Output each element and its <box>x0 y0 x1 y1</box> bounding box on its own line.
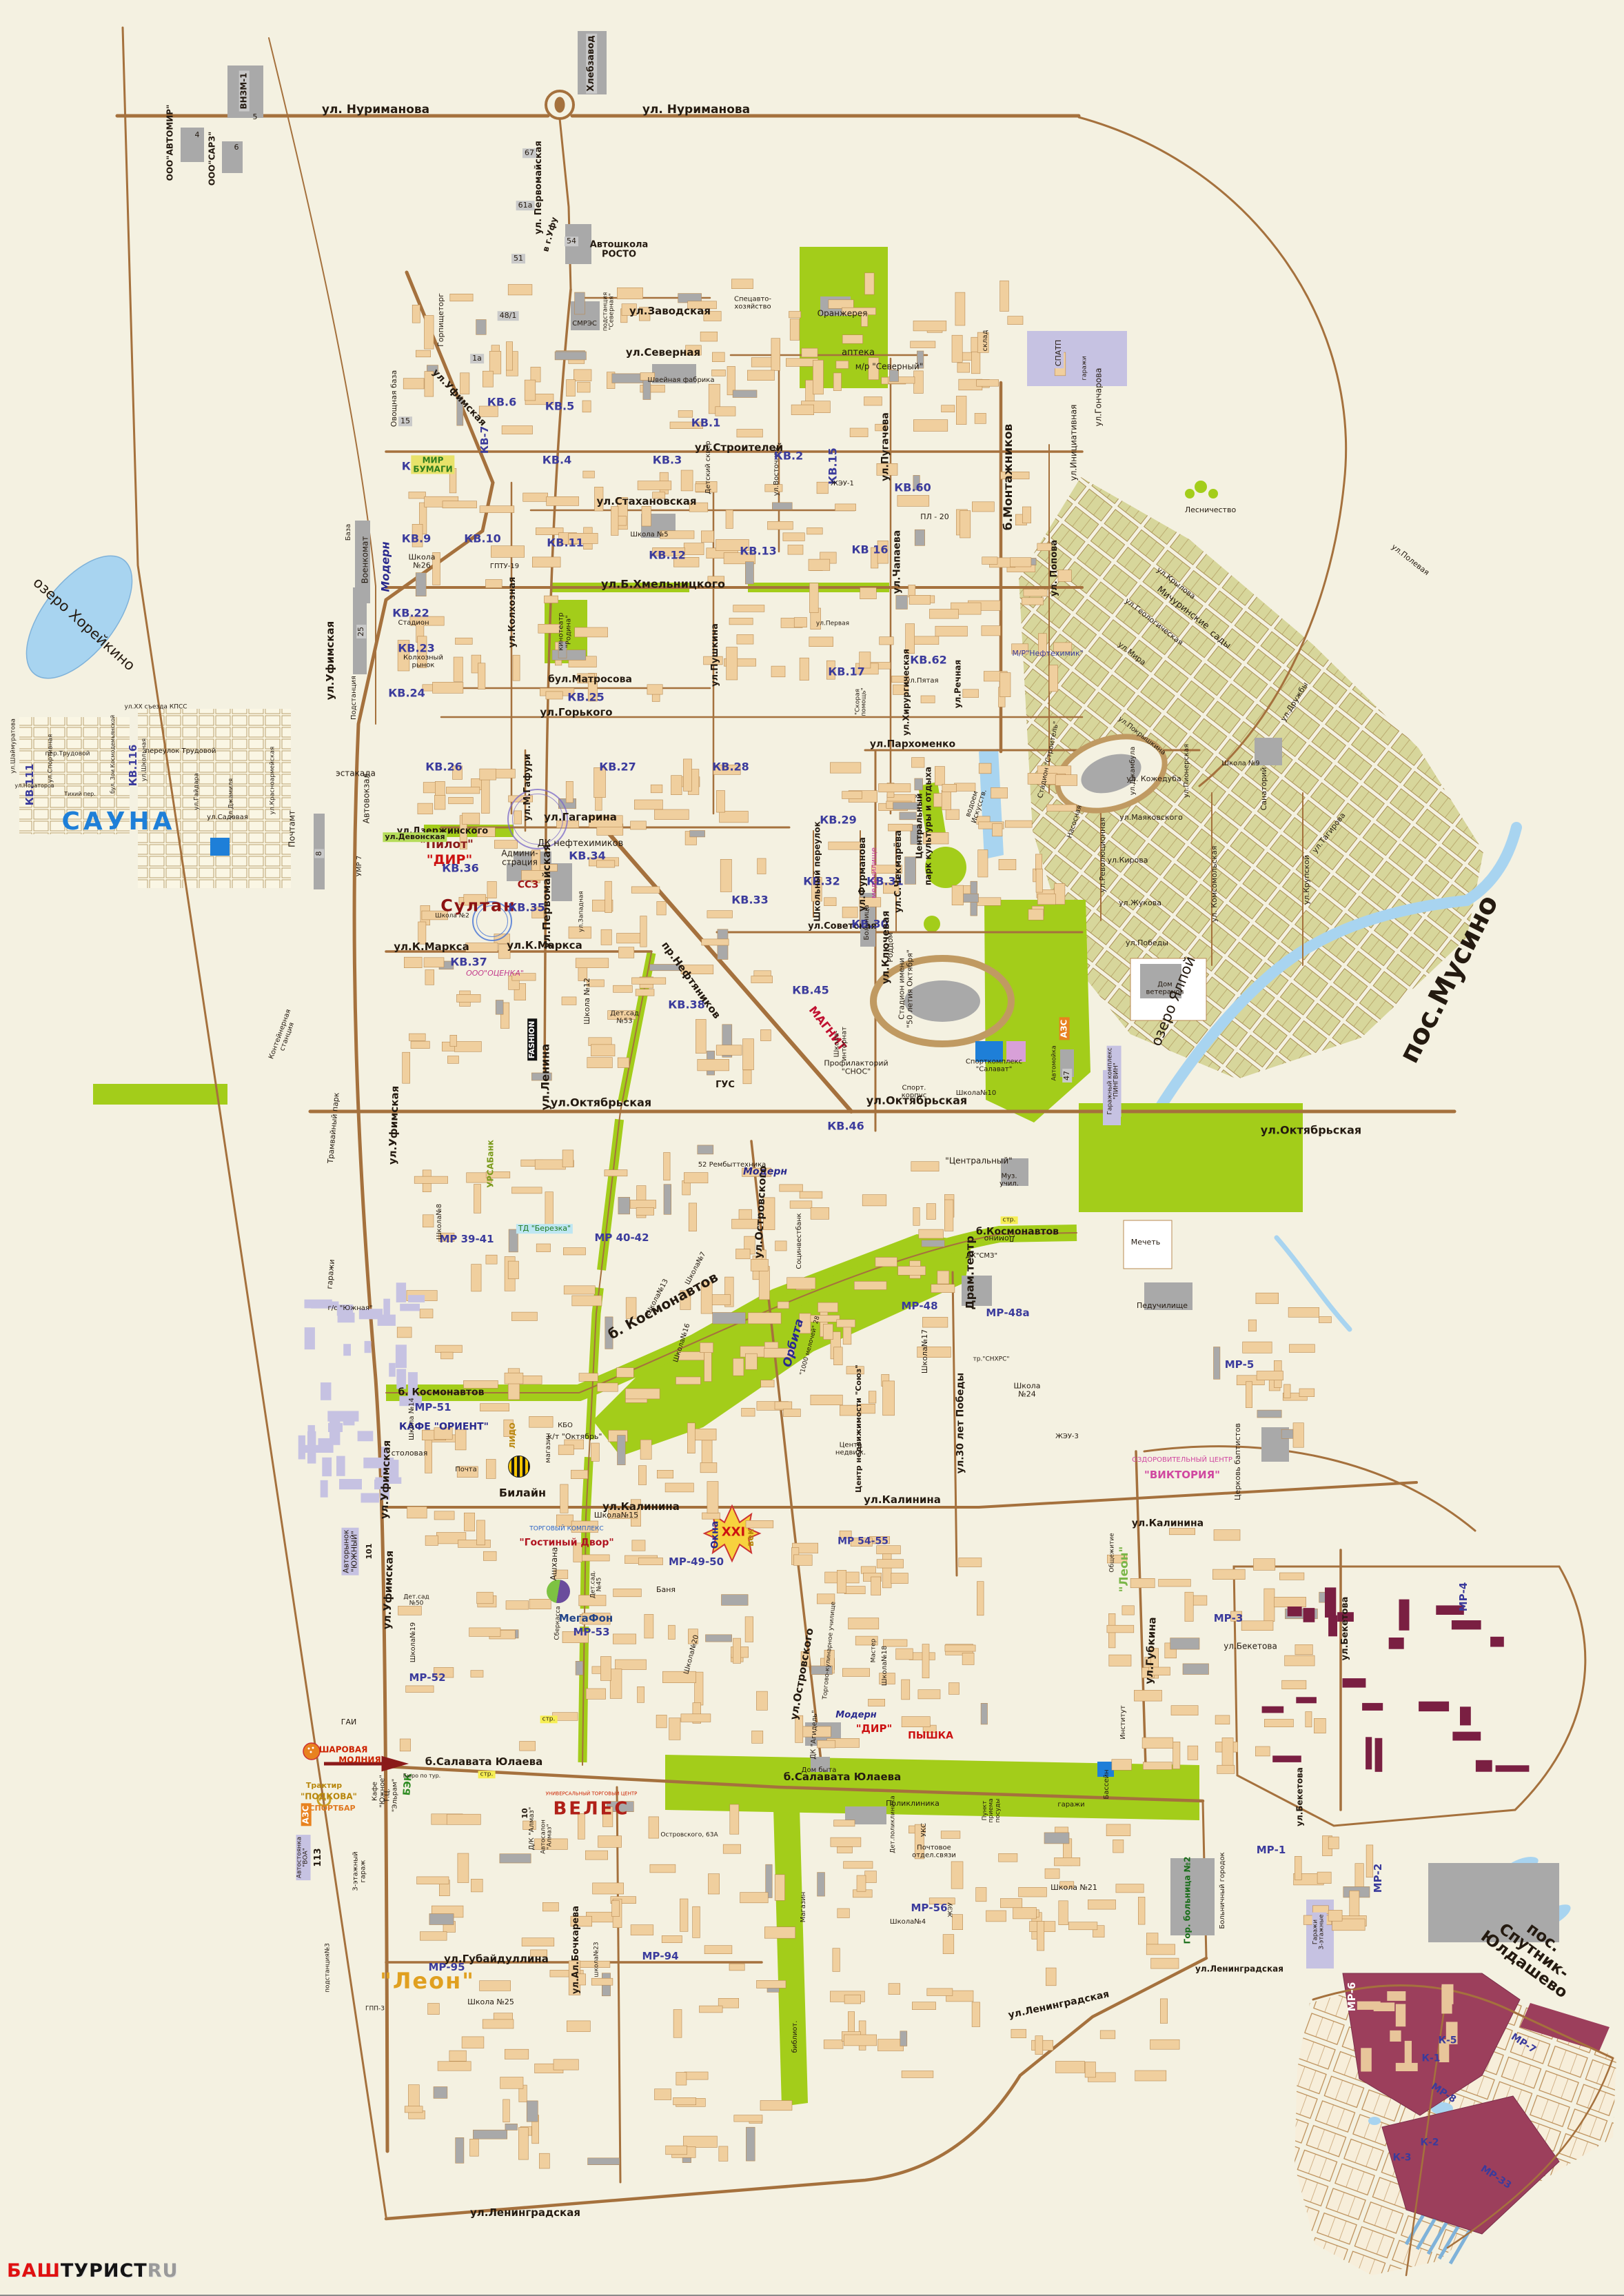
label-gpp3: ГПП-3 <box>365 2006 385 2012</box>
label-uks: УКС <box>921 1823 928 1837</box>
label-ul-oktyabrskaya-1: ул.Октябрьская <box>551 1098 651 1109</box>
label-spatp: СПАТП <box>1054 338 1064 368</box>
label-ul-novatorov: ул.Новаторов <box>14 783 54 789</box>
label-avtovokzal: Автовокзал <box>363 774 372 824</box>
label-shkola23: школа№23 <box>593 1942 600 1977</box>
label-kv116: КВ.116 <box>128 745 139 787</box>
label-dramteatr: Драм.театр <box>965 1236 977 1309</box>
label-tikhiy-per: Тихий пер. <box>64 792 96 797</box>
label-mr53: МР-53 <box>573 1627 609 1638</box>
label-viktoriya: "ВИКТОРИЯ" <box>1144 1470 1220 1481</box>
label-b-kosmonavtov-left: б. Космонавтов <box>398 1388 485 1398</box>
watermark-part-2: ТУРИСТ <box>61 2260 148 2282</box>
label-ul-chapaeva: ул.Чапаева <box>893 530 903 594</box>
kv116-plots <box>138 709 291 888</box>
watermark-part-1: БАШ <box>7 2260 61 2282</box>
label-mr-39-41: МР 39-41 <box>439 1234 494 1245</box>
bashturist-watermark: БАШТУРИСТRU <box>7 2260 178 2282</box>
label-ul-kirova: ул.Кирова <box>1108 856 1148 865</box>
label-mr52: МР-52 <box>409 1673 445 1684</box>
label-ul-revolyutsionnaya: ул.Революционная <box>1099 817 1107 892</box>
label-ul-devonskaya: ул.Девонская <box>383 832 447 842</box>
label-ul-gagarina: ул.Гагарина <box>544 812 617 823</box>
label-kv4: КВ.4 <box>542 455 571 467</box>
label-ul-komsomolskaya: ул. Комсомольская <box>1210 846 1219 923</box>
label-ul-goncharova: ул.Гончарова <box>1095 368 1104 427</box>
label-megafon: МегаФон <box>559 1613 613 1624</box>
label-modern-3: Модерн <box>835 1711 876 1720</box>
label-shkola12: Школа №12 <box>583 978 591 1025</box>
label-mr51: МР-51 <box>414 1402 451 1413</box>
label-bolnichny-gorodok: Больничный городок <box>1219 1852 1227 1929</box>
label-pochta: Почта <box>455 1467 477 1474</box>
label-num-5: 5 <box>253 113 258 121</box>
label-mr3: МР-3 <box>1214 1613 1244 1624</box>
label-smres: СМРЭС <box>572 321 597 328</box>
label-num-51: 51 <box>511 254 525 263</box>
label-avtosalon-almaz: Автосалон "Алмаз" <box>541 1820 554 1854</box>
label-kv24: КВ.24 <box>388 688 425 700</box>
label-sotsinvestbank: Социнвестбанк <box>796 1213 804 1269</box>
label-gostiny-dvor-2: "Гостиный Двор" <box>519 1538 613 1549</box>
label-num-8: 8 <box>314 849 324 858</box>
label-kv5: КВ.5 <box>545 401 574 413</box>
label-ul-pugacheva: ул.Пугачева <box>881 412 891 481</box>
label-zheu: ЖЭУ <box>948 1902 954 1917</box>
label-pyshka: ПЫШКА <box>908 1731 953 1742</box>
label-per-trudovoy: пер.Трудовой <box>45 751 90 757</box>
label-ul-popova: ул. Попова <box>1050 540 1059 596</box>
beeline-logo-icon <box>508 1456 530 1478</box>
label-ul-dzhamilya: ул.Джамиля <box>228 778 234 818</box>
label-str-chip-1: стр. <box>540 1715 558 1723</box>
label-shkola4: Школа№4 <box>890 1919 926 1926</box>
label-ul-khirurgicheskaya: ул.Хирургическая <box>902 649 911 736</box>
map-geometry-layer <box>0 0 1624 2295</box>
label-pl20: ПЛ - 20 <box>920 513 949 521</box>
label-ul-krupskoy: ул.Крупской <box>1303 855 1311 905</box>
label-azs-1: АЗС <box>1059 1018 1070 1040</box>
label-leon-big: "Леон" <box>380 1970 475 1993</box>
label-bassein: Бассейн <box>1104 1769 1111 1799</box>
label-ooo-sarz: ООО"САРЗ" <box>208 132 217 186</box>
label-ul-ufimskaya-v1: ул.Уфимская <box>325 621 336 701</box>
label-byuro-tur: Бюро по тур. <box>403 1773 440 1779</box>
label-kv35: КВ.35 <box>508 903 545 914</box>
label-shkola8: Школа№8 <box>436 1204 444 1240</box>
label-shkola19: Школа№19 <box>410 1622 418 1663</box>
label-sport-korpus: Спорт. корпус <box>902 1085 926 1100</box>
label-avtomoyka: Автомойка <box>1051 1045 1057 1080</box>
label-mr94: МР-94 <box>642 1951 678 1962</box>
label-garazhi-spatp: гаражи <box>1082 356 1088 380</box>
label-ul-nurimanova-1: ул. Нуриманова <box>322 104 429 117</box>
label-ul-leningradskaya-3: ул.Ленинградская <box>1195 1965 1283 1974</box>
label-k2: К-2 <box>1421 2138 1439 2148</box>
label-zheu3: ЖЭУ-3 <box>1055 1433 1079 1441</box>
label-sharovaya: ШАРОВАЯ <box>319 1746 368 1755</box>
label-kt-oktyabr: к/т "Октябрь" <box>548 1433 602 1441</box>
label-kv22: КВ.22 <box>392 608 429 620</box>
label-pochtovoe: Почтовое отдел.связи <box>912 1845 956 1860</box>
label-ul-shaymuratova: ул.Шаймуратова <box>10 718 17 774</box>
label-ul-k-marksa-1: ул.К.Маркса <box>394 942 469 953</box>
label-shkola2: Школа №2 <box>435 913 469 919</box>
label-ul-leningradskaya-1: ул.Ленинградская <box>470 2208 580 2219</box>
label-ul-beketova-1: ул.Бекетова <box>1224 1642 1277 1651</box>
label-ul-krasnoarmeyskaya: ул.Красноармейская <box>270 747 276 815</box>
label-bul-zoi: бул. Зои Космодемьянской <box>110 715 116 794</box>
label-lido: ЛИДО <box>509 1422 517 1449</box>
label-kv25: КВ.25 <box>567 692 605 704</box>
label-molniya: МОЛНИЯ <box>338 1756 380 1765</box>
label-mr1: МР-1 <box>1257 1845 1286 1856</box>
label-pingvin: Гаражный комплекс "ПИНГВИН" <box>1107 1045 1121 1116</box>
label-kv11: КВ.11 <box>547 538 584 550</box>
label-skoraya: "Скорая помощь" <box>855 687 869 716</box>
label-str-chip-2: стр. <box>1001 1216 1018 1224</box>
label-ul-zhukova: ул.Жукова <box>1119 899 1161 907</box>
label-oranzhereya: Оранжерея <box>818 310 868 319</box>
label-kv46: КВ.46 <box>827 1121 864 1133</box>
label-mr56: МР-56 <box>911 1903 947 1914</box>
label-kv1: КВ.1 <box>691 418 720 430</box>
label-kv12: КВ.12 <box>649 550 686 562</box>
label-institut: Институт <box>1120 1705 1128 1739</box>
label-ul-pyataya: ул.Пятая <box>906 678 939 685</box>
label-dir-2: "ДИР" <box>856 1724 893 1735</box>
label-ul-oktyabrskaya-3: ул.Октябрьская <box>1261 1125 1361 1137</box>
label-zheu1: ЖЭУ-1 <box>831 481 854 488</box>
label-mr5: МР-5 <box>1225 1360 1255 1371</box>
label-kv16: КВ 16 <box>851 545 888 556</box>
label-gptu19: ГПТУ-19 <box>490 563 519 571</box>
label-ul-kalinina-2: ул.Калинина <box>864 1495 941 1506</box>
label-ul-gaydara: ул.Гайдара <box>194 773 200 810</box>
label-obshchezhitie: Общежитие <box>1109 1533 1115 1572</box>
label-ul-stakhanovskaya: ул.Стахановская <box>596 496 696 507</box>
label-spetsavtokhozyaystvo: Спецавто- хозяйство <box>734 296 771 311</box>
label-mr-severny: м/р "Северный" <box>855 363 924 372</box>
label-kv17: КВ.17 <box>828 667 865 678</box>
label-kv7: КВ-7 <box>480 426 491 454</box>
label-shkola24: Школа №24 <box>1014 1382 1041 1398</box>
label-kv13: КВ.13 <box>740 546 777 558</box>
label-podkova: "ПОДКОВА" <box>301 1793 357 1802</box>
label-magazin-1: магазин <box>545 1433 553 1462</box>
label-azs-2: АЗС <box>301 1804 312 1826</box>
label-num-67: 67 <box>522 148 536 158</box>
label-shkola10: Школа№10 <box>956 1090 997 1098</box>
label-dk-almaz: Д/К "Алмаз" <box>529 1807 536 1851</box>
label-kv27: КВ.27 <box>599 762 636 774</box>
label-ul-xx-sezda: ул.XX съезда КПСС <box>124 704 187 710</box>
label-ul-zapadnaya: ул.Западная <box>578 891 585 932</box>
megafon-logo-icon <box>547 1580 570 1603</box>
label-modern-1: Модерн <box>380 541 392 592</box>
label-b-salavata-2: б.Салавата Юлаева <box>784 1772 902 1783</box>
label-gorpishchetorg: Горпищеторг <box>437 293 445 347</box>
label-shkola21: Школа №21 <box>1050 1884 1097 1892</box>
label-lesnichestvo: Лесничество <box>1185 506 1236 514</box>
label-num-10: 10 <box>521 1808 529 1818</box>
label-peduchilishche: Педучилище <box>1137 1302 1188 1310</box>
label-ostrovskogo-63a: Островского, 63А <box>660 1832 718 1838</box>
label-ul-shkolnaya: ул.Школьная <box>141 738 148 781</box>
label-khlebzavod: Хлебзавод <box>586 33 597 93</box>
label-detsad50: Дет.сад №50 <box>403 1595 429 1608</box>
label-mr95: МР-95 <box>428 1962 465 1973</box>
label-ul-gorkogo: ул.Горького <box>540 707 612 718</box>
label-kv2: КВ.2 <box>774 451 803 463</box>
label-mr54-55: МР 54-55 <box>838 1537 889 1547</box>
label-ul-pobedy: ул.Победы <box>1126 939 1168 947</box>
label-num-61a: 61а <box>516 201 535 210</box>
label-num-48-1: 48/1 <box>498 311 519 321</box>
label-apteka: аптека <box>842 348 875 358</box>
label-kv62: КВ.62 <box>910 655 947 667</box>
label-punkt-posudy: Пункт приема посуды <box>982 1798 1002 1822</box>
label-podstantsiya3: подстанция№3 <box>325 1943 331 1993</box>
label-kv34: КВ.34 <box>569 851 606 863</box>
label-ul-beketova-3: ул.Бекетова <box>1296 1767 1305 1826</box>
city-map[interactable]: ул. Нуримановаул. НуримановаООО"АВТОМИР"… <box>0 0 1624 2296</box>
label-b-montazhnikov: б.Монтажников <box>1003 424 1015 531</box>
label-b-salavata-1: б.Салавата Юлаева <box>425 1757 543 1768</box>
label-num-101: 101 <box>365 1544 374 1560</box>
label-mechet: Мечеть <box>1131 1238 1160 1247</box>
label-shkola26: Школа №26 <box>409 553 436 569</box>
label-baza: База <box>345 524 353 541</box>
label-mr6: МР-6 <box>1347 1982 1358 2012</box>
label-okna: Окна <box>711 1521 721 1549</box>
label-ul-dzhambula: ул.Джамбула <box>1130 747 1137 796</box>
label-kv10: КВ.10 <box>464 534 501 545</box>
label-vek: век <box>747 1529 756 1547</box>
label-tr-snkhrs: тр."СНХРС" <box>973 1356 1009 1362</box>
label-ul-zavodskaya: ул.Заводская <box>629 306 711 317</box>
label-k1: К-1 <box>1422 2054 1441 2064</box>
label-administratsiya: Админи- страция <box>501 849 538 866</box>
label-podstantsiya-severnaya: подстанция "Северная" <box>603 292 616 332</box>
label-avtoshkola-rosto: Автошкола РОСТО <box>590 240 649 259</box>
label-sklad: склад <box>982 330 990 352</box>
label-str-chip-3: стр. <box>478 1771 496 1778</box>
label-ul-furmanova: ул.Фурманова <box>858 837 868 912</box>
label-bilayn: Билайн <box>499 1488 546 1500</box>
label-traktir: Трактир <box>306 1782 342 1790</box>
label-detsad45: Дет.сад. №45 <box>591 1571 604 1598</box>
label-ul-pushkina: ул.Пушкина <box>711 623 720 687</box>
label-fashion: FASHION <box>527 1019 537 1061</box>
watermark-part-3: RU <box>148 2260 179 2282</box>
label-profilaktoriy-snos: Профилакторий "СНОС" <box>824 1059 888 1075</box>
label-tts-elram: Т.Ц. "Эльрам" <box>385 1779 399 1813</box>
label-viktoriya-sub: ОЗДОРОВИТЕЛЬНЫЙ ЦЕНТР <box>1132 1457 1232 1464</box>
label-kinoteatr-rodina: кинотеатр "Родина" <box>558 612 573 650</box>
label-tsentralny: "Центральный" <box>945 1157 1012 1166</box>
label-ooo-otsenka: ООО"ОЦЕНКА" <box>466 969 524 978</box>
label-ul-mayakovskogo: ул.Маяковского <box>1119 814 1183 822</box>
label-tsentr-park: Центральный парк культуры и отдыха <box>915 767 932 885</box>
label-voenkomat: Военкомат <box>361 536 370 584</box>
label-num-1a: 1а <box>470 354 484 363</box>
label-ssz: ССЗ <box>518 880 539 891</box>
label-num-6: 6 <box>234 143 239 152</box>
label-shkola18: Школа№18 <box>882 1646 889 1686</box>
label-kv3: КВ.3 <box>653 455 682 467</box>
label-podstantsiya: Подстанция <box>351 676 358 720</box>
building-scatter <box>298 273 1530 2168</box>
label-stadion-50: Стадион имени "50 летия Октября" <box>897 949 913 1028</box>
label-k3: К-3 <box>1393 2153 1412 2164</box>
label-ul-sportivnaya: ул.Спортивная <box>48 734 54 783</box>
label-gs-yuzhnaya: г/с "Южная" <box>328 1305 373 1313</box>
label-ooo-avtomir: ООО"АВТОМИР" <box>166 105 175 181</box>
label-mr-neftekhimik: М/Р"Нефтехимик" <box>1012 649 1083 658</box>
label-master: Мастер <box>871 1639 877 1663</box>
label-tsentr-soyuz: Центр недвижимости "Союз" <box>855 1364 863 1493</box>
label-veles-sub: УНИВЕРСАЛЬНЫЙ ТОРГОВЫЙ ЦЕНТР <box>546 1791 638 1796</box>
label-kv37: КВ.37 <box>450 957 487 969</box>
label-dk-smz: ДК"СМЗ" <box>966 1253 997 1260</box>
label-kv26: КВ.26 <box>425 762 463 774</box>
label-gai: ГАИ <box>341 1718 356 1726</box>
label-pochtamt: Почтамт <box>288 810 297 847</box>
label-ul-kalinina-1: ул.Калинина <box>602 1502 680 1513</box>
label-shveynaya-fabrika: Швейная фабрика <box>648 377 715 385</box>
label-gus: ГУС <box>715 1080 735 1090</box>
label-ul-s-chekmareva: ул.С.Чекмарёва <box>894 830 904 913</box>
label-detsad53: Дет.сад №53 <box>610 1011 639 1025</box>
label-ul-severnaya: ул.Северная <box>626 348 700 359</box>
label-ul-b-khmelnitskogo: ул.Б.Хмельницкого <box>601 579 725 591</box>
label-detskiy-skver: Детский сквер <box>705 441 713 494</box>
label-garazh-3et: 3-этажный гараж <box>353 1851 367 1891</box>
label-kbo: КБО <box>558 1422 573 1430</box>
label-ul-pervomayskaya-mid: ул.Первомайская <box>542 844 553 948</box>
label-num-47: 47 <box>1062 1069 1072 1082</box>
label-bibliot: библиот. <box>792 2021 800 2053</box>
label-muz-uchil: Муз. учил. <box>999 1174 1019 1188</box>
label-domino: Домино <box>984 1234 1015 1242</box>
label-sanatoriy: Санаторий <box>1260 767 1268 811</box>
bowling-ball-icon <box>303 1743 320 1760</box>
label-k5: К-5 <box>1439 2036 1457 2046</box>
label-kv36: КВ.36 <box>442 863 479 875</box>
label-ul-kalinina-3: ул.Калинина <box>1132 1519 1204 1529</box>
label-kv28: КВ.28 <box>712 762 749 774</box>
label-ul-parkhomenko: ул.Пархоменко <box>870 740 955 750</box>
label-ul-pervaya: ул.Первая <box>816 621 849 627</box>
label-td-berezka: ТД "Березка" <box>516 1224 573 1233</box>
label-shkola9: Школа №9 <box>1221 761 1259 768</box>
label-kv60: КВ.60 <box>894 483 931 494</box>
label-ul-m-gafuri: ул.М.Гафури <box>523 754 533 821</box>
label-veles: ВЕЛЕС <box>553 1800 629 1818</box>
label-kv23: КВ.23 <box>398 643 435 655</box>
label-ul-kolkhoznaya: ул.Колхозная <box>508 577 518 648</box>
label-banya: Баня <box>656 1586 676 1594</box>
label-num-4: 4 <box>195 131 200 139</box>
label-ul-beketova-2: ул.Бекетова <box>1341 1597 1350 1661</box>
label-leon-vert: "Леон" <box>1119 1547 1131 1593</box>
label-gostiny-dvor-1: ТОРГОВЫЙ КОМПЛЕКС <box>529 1526 603 1532</box>
label-kv29: КВ.29 <box>820 815 857 827</box>
label-mr2: МР-2 <box>1373 1864 1384 1893</box>
label-xxi: XXI <box>722 1527 745 1540</box>
label-meduchilishche: медучилище <box>870 847 878 898</box>
label-bolnitsa: Больница <box>864 905 871 940</box>
label-mir-bumagi: МИР БУМАГИ <box>411 455 454 474</box>
label-garazhi-3etazhnye: Гаражи 3-этажные <box>1312 1912 1327 1951</box>
label-ul-rechnaya: ул.Речная <box>954 660 963 708</box>
label-umr7: УМР 7 <box>356 856 364 876</box>
label-ul-sadovaya: ул.Садовая <box>207 814 248 822</box>
label-tsentr-nedvizh: Центр недвиж. <box>835 1442 866 1457</box>
label-num-54: 54 <box>565 236 578 246</box>
label-kv6: КВ.6 <box>487 397 516 409</box>
sauna-block <box>210 838 230 856</box>
label-mr4: МР-4 <box>1459 1582 1470 1612</box>
label-magazin-2: Магазин <box>800 1892 808 1923</box>
label-ovoshchnaya-baza: Овощная база <box>390 370 398 427</box>
label-avtostoyanka-voa: Автостоянка "ВОА" <box>296 1835 311 1880</box>
label-sportbar: СПОРТБАР <box>309 1804 355 1813</box>
label-kolkhozny-rynok: Колхозный рынок <box>403 655 443 669</box>
label-stadion-kv22: Стадион <box>398 620 429 627</box>
label-shkola17: Школа№17 <box>921 1329 929 1373</box>
label-ul-pionerskaya: ул.Пионерская <box>1184 744 1191 798</box>
label-kv9: КВ.9 <box>402 534 431 545</box>
label-tserkov-baptistov: Церковь баптистов <box>1234 1423 1242 1500</box>
label-num-25: 25 <box>356 625 366 638</box>
label-ul-initsiativnaya: ул.Инициативная <box>1070 405 1079 481</box>
label-ursa-bank: УРСАБанк <box>487 1140 496 1188</box>
label-kv33: КВ.33 <box>731 895 769 907</box>
label-garazhi-2: гаражи <box>1057 1802 1084 1809</box>
label-ul-30-let-pobedy: ул.30 лет Победы <box>956 1373 966 1473</box>
label-ul-nurimanova-2: ул. Нуриманова <box>642 104 750 117</box>
label-sberkassa: Сберкасса <box>554 1606 562 1640</box>
label-det-poliklinika: Дет.поликлиника <box>890 1795 896 1853</box>
label-vnzm: ВНЗМ-1 <box>239 71 250 112</box>
label-avtorynok: Авторынок "ЮЖНЫЙ" <box>341 1527 358 1575</box>
label-mr-40-42: МР 40-42 <box>594 1233 649 1244</box>
label-mr-49-50: МР-49-50 <box>669 1557 724 1568</box>
label-num-113: 113 <box>314 1848 323 1866</box>
label-ul-klyuchevaya: ул.Ключевая <box>882 911 892 984</box>
label-shkola-internat: Школа- интернат <box>834 1027 849 1061</box>
label-num-15: 15 <box>398 416 412 426</box>
label-ashkhana: Ашхана <box>549 1547 559 1580</box>
label-gor-bolnitsa: Гор. больница №2 <box>1184 1857 1192 1944</box>
label-kv45: КВ.45 <box>792 985 829 997</box>
label-shkolny-pereulok: Школьный переулок <box>813 821 822 921</box>
label-shkola5: Школа №5 <box>630 532 668 539</box>
label-sportkompleks-salavat: Спорткомплекс "Салават" <box>966 1059 1022 1074</box>
label-mr-48a: МР-48а <box>986 1308 1029 1319</box>
label-ul-bochkareva: ул.Ал.Бочкарева <box>571 1906 581 1994</box>
label-bul-matrosova: бул.Матросова <box>548 675 632 685</box>
label-mr-48: МР-48 <box>901 1301 937 1312</box>
label-pereulok-trudovoy: переулок Трудовой <box>145 748 216 756</box>
label-sauna: САУНА <box>61 809 175 835</box>
label-shkola25: Школа №25 <box>467 1998 514 2006</box>
label-stolovaya: столовая <box>392 1449 428 1458</box>
